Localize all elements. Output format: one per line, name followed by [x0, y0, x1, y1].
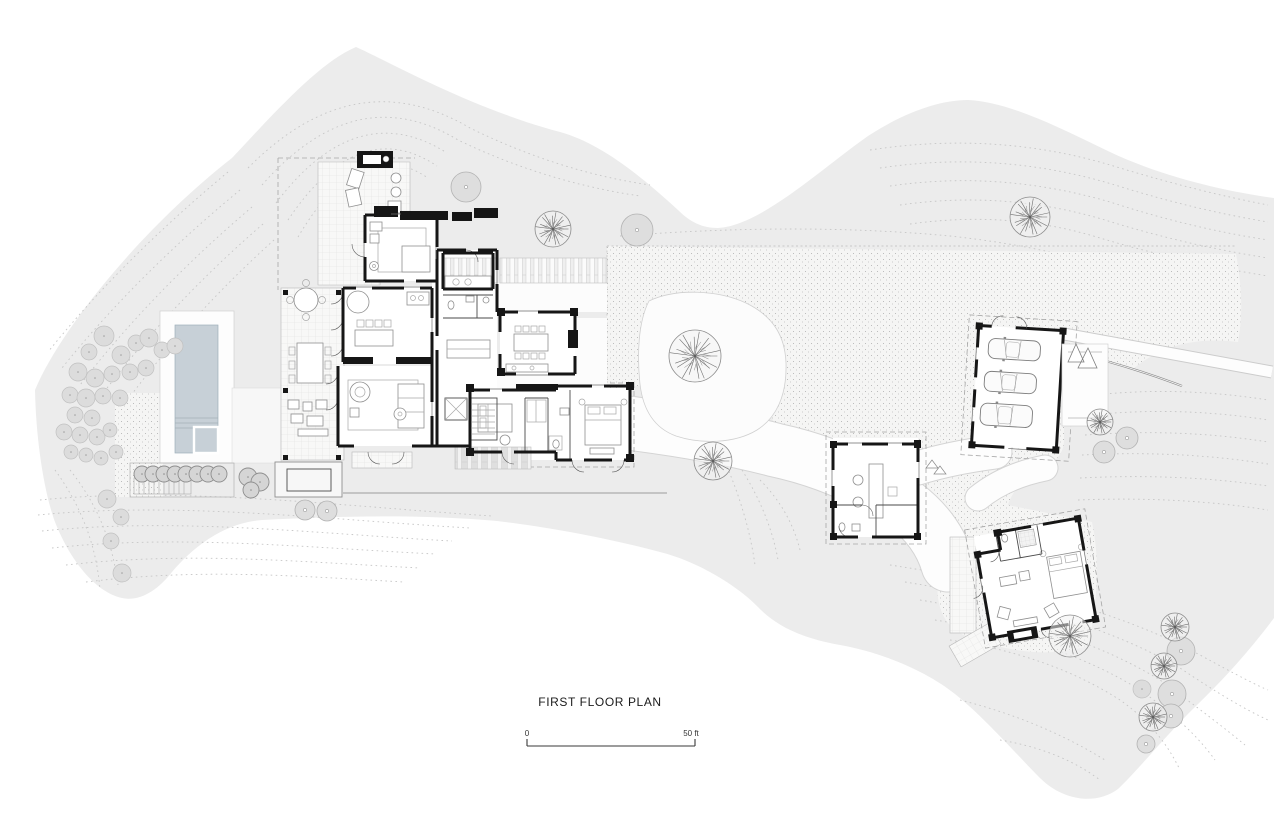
shrub-icon [113, 564, 131, 582]
tree-branching-icon [1087, 409, 1113, 435]
tree-round-icon [317, 501, 337, 521]
shrub-icon [138, 360, 154, 376]
shrub-icon [103, 533, 119, 549]
tree-branching-icon [1010, 197, 1050, 237]
scale-start-label: 0 [525, 729, 530, 738]
tree-round-icon [295, 500, 315, 520]
shrub-icon [122, 364, 138, 380]
shrub-icon [89, 429, 105, 445]
shrub-icon [98, 490, 116, 508]
shrub-icon [112, 346, 130, 364]
tree-round-icon [1137, 735, 1155, 753]
spa [194, 427, 218, 453]
shrub-icon [79, 448, 93, 462]
scale-bar: 0 50 ft [525, 729, 700, 746]
floor-plan-drawing: FIRST FLOOR PLAN 0 50 ft [0, 0, 1275, 825]
shrub-icon [84, 410, 100, 426]
tree-round-icon [451, 172, 481, 202]
shrub-icon [86, 369, 104, 387]
shrub-icon [67, 407, 83, 423]
shrub-icon [72, 427, 88, 443]
tree-branching-icon [1139, 703, 1167, 731]
entry-pavilion [275, 462, 342, 497]
shrub-icon [113, 509, 129, 525]
shrub-icon [167, 338, 183, 354]
tree-round-icon [1093, 441, 1115, 463]
shrub-icon [103, 423, 117, 437]
trellis-east [500, 258, 607, 283]
shrub-icon [140, 329, 158, 347]
south-porch [352, 452, 412, 468]
hedge-shrub-icon [211, 466, 227, 482]
tree-branching-icon [535, 211, 571, 247]
shrub-icon [95, 388, 111, 404]
tree-branching-icon [1049, 615, 1091, 657]
shrub-icon [64, 445, 78, 459]
floor-plan-sheet: FIRST FLOOR PLAN 0 50 ft [0, 0, 1275, 825]
tree-branching-icon [1161, 613, 1189, 641]
shrub-icon [62, 387, 78, 403]
shrub-icon [112, 390, 128, 406]
garage-cars [980, 336, 1041, 431]
tree-round-icon [1116, 427, 1138, 449]
hedge-shrub-icon [243, 482, 259, 498]
shrub-icon [94, 326, 114, 346]
tree-branching-icon [669, 330, 721, 382]
tree-branching-icon [694, 442, 732, 480]
shrub-icon [1133, 680, 1151, 698]
shrub-icon [69, 363, 87, 381]
outdoor-fireplace [357, 151, 393, 168]
shrub-icon [77, 389, 95, 407]
shrub-icon [104, 366, 120, 382]
tree-round-icon [621, 214, 653, 246]
shrub-icon [56, 424, 72, 440]
tree-branching-icon [1151, 653, 1177, 679]
shrub-icon [81, 344, 97, 360]
scale-end-label: 50 ft [683, 729, 699, 738]
shrub-icon [109, 445, 123, 459]
drawing-title: FIRST FLOOR PLAN [538, 695, 661, 709]
shrub-icon [94, 451, 108, 465]
